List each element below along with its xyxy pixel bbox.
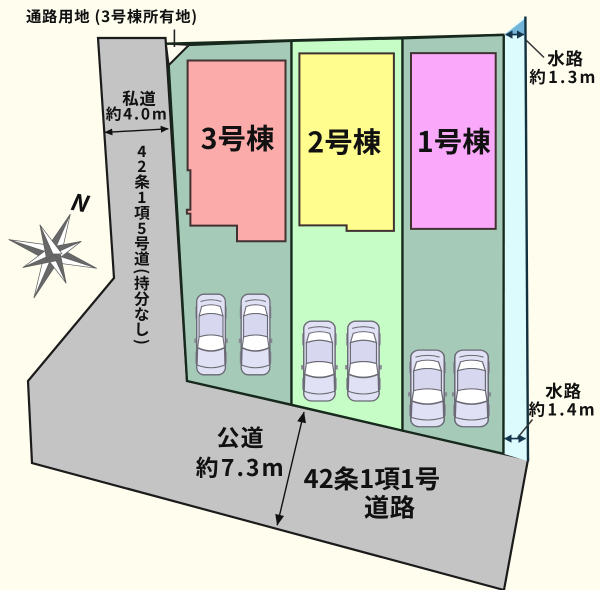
svg-text:): ): [132, 339, 154, 345]
svg-text:約1.3m: 約1.3m: [529, 64, 597, 88]
svg-text:約4.0m: 約4.0m: [106, 103, 169, 125]
svg-text:道路: 道路: [364, 488, 416, 525]
svg-text:公道: 公道: [217, 419, 265, 453]
svg-text:約1.4m: 約1.4m: [529, 397, 597, 421]
svg-text:3号棟: 3号棟: [201, 117, 275, 158]
svg-text:約7.3m: 約7.3m: [196, 449, 286, 483]
svg-text:1号棟: 1号棟: [417, 120, 491, 161]
svg-text:通路用地 (3号棟所有地): 通路用地 (3号棟所有地): [25, 5, 198, 27]
svg-text:2号棟: 2号棟: [307, 121, 381, 162]
svg-text:し: し: [134, 318, 150, 340]
svg-text:道: 道: [134, 248, 150, 270]
